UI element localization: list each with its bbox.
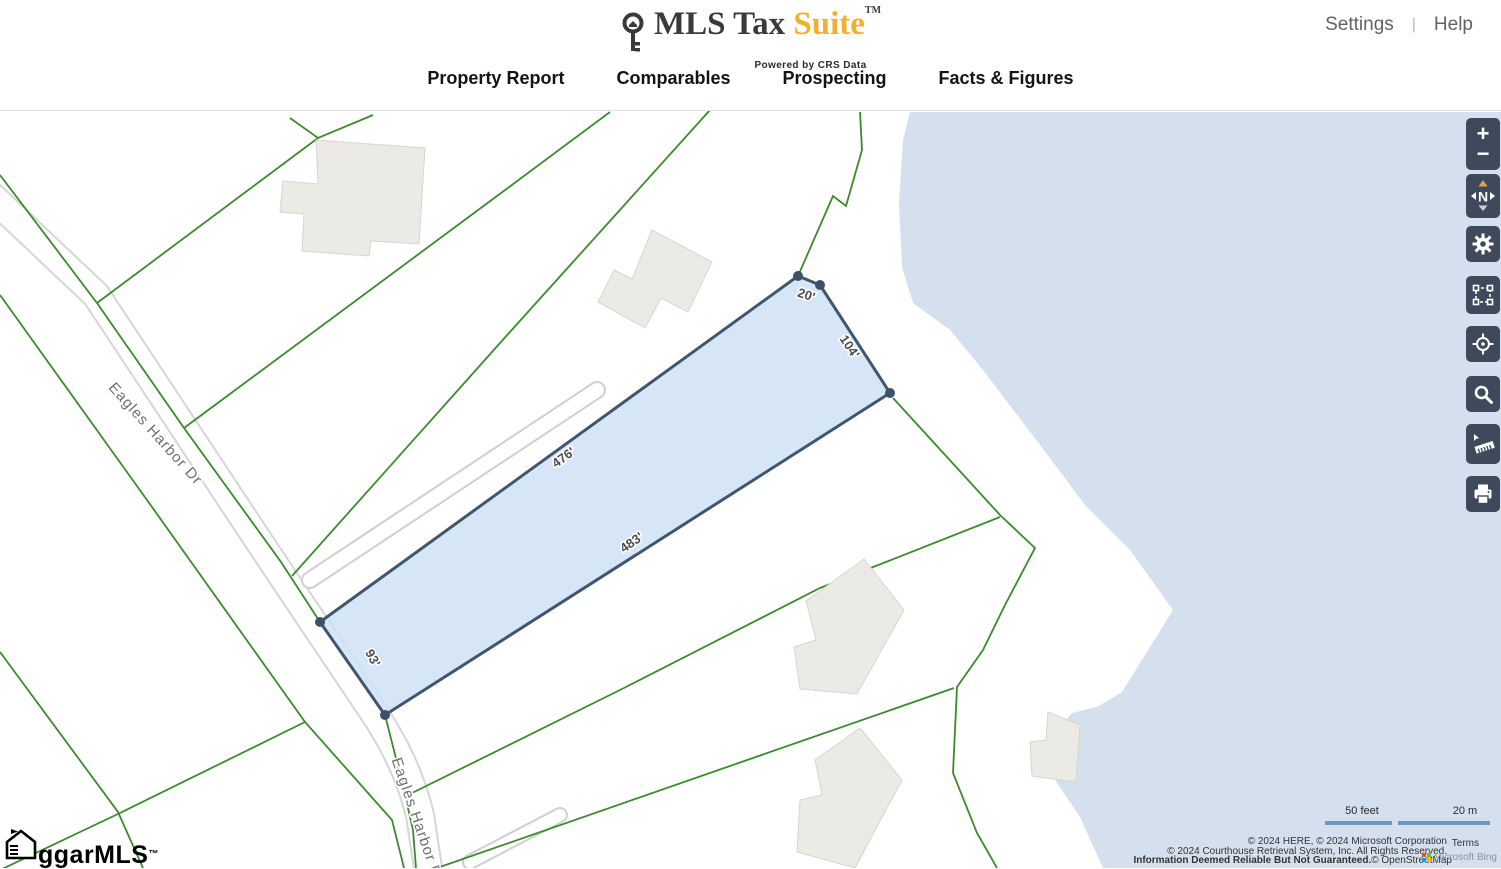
zoom-control[interactable]: + − bbox=[1466, 118, 1500, 170]
house-icon bbox=[2, 827, 38, 866]
map-settings-button[interactable] bbox=[1466, 226, 1500, 262]
compass-icon: N bbox=[1466, 174, 1500, 218]
scale-bar-feet bbox=[1325, 821, 1392, 825]
bing-watermark: Microsoft Bing bbox=[1422, 852, 1497, 863]
print-icon bbox=[1472, 483, 1494, 505]
search-button[interactable] bbox=[1466, 376, 1500, 412]
scale-meters-label: 20 m bbox=[1437, 805, 1493, 817]
links-divider: | bbox=[1412, 16, 1416, 34]
footer-logo-text: ggarMLS™ bbox=[38, 844, 159, 866]
map-canvas[interactable]: 20' 104' 476' 483' 93' Eagles Harbor Dr … bbox=[0, 0, 1501, 868]
terms-link[interactable]: Terms bbox=[1452, 838, 1479, 849]
area-select-icon bbox=[1472, 284, 1494, 306]
microsoft-logo-icon bbox=[1422, 853, 1431, 862]
area-select-button[interactable] bbox=[1466, 276, 1500, 314]
settings-link[interactable]: Settings bbox=[1325, 14, 1394, 36]
locate-button[interactable] bbox=[1466, 326, 1500, 362]
tab-property-report[interactable]: Property Report bbox=[427, 68, 564, 89]
scale-bar-meters bbox=[1398, 821, 1490, 825]
help-link[interactable]: Help bbox=[1434, 14, 1473, 36]
scale-feet-label: 50 feet bbox=[1332, 805, 1392, 817]
print-button[interactable] bbox=[1466, 476, 1500, 512]
zoom-out-button[interactable]: − bbox=[1477, 143, 1490, 165]
header: MLS Tax SuiteTM Powered by CRS Data Sett… bbox=[0, 0, 1501, 111]
measure-button[interactable] bbox=[1466, 424, 1500, 464]
key-icon bbox=[620, 12, 646, 59]
tab-comparables[interactable]: Comparables bbox=[616, 68, 730, 89]
tab-facts-figures[interactable]: Facts & Figures bbox=[939, 68, 1074, 89]
attribution-line3: Information Deemed Reliable But Not Guar… bbox=[1133, 855, 1452, 866]
search-icon bbox=[1472, 383, 1494, 405]
app-logo: MLS Tax SuiteTM Powered by CRS Data bbox=[0, 8, 1501, 71]
locate-icon bbox=[1472, 333, 1494, 355]
svg-text:N: N bbox=[1478, 189, 1488, 205]
mls-footer-logo: ggarMLS™ bbox=[2, 827, 159, 866]
main-nav: Property Report Comparables Prospecting … bbox=[0, 68, 1501, 89]
compass-button[interactable]: N bbox=[1466, 174, 1500, 218]
gear-icon bbox=[1472, 233, 1494, 255]
app-title: MLS Tax SuiteTM bbox=[654, 8, 881, 41]
trademark: TM bbox=[865, 5, 881, 16]
tab-prospecting[interactable]: Prospecting bbox=[783, 68, 887, 89]
measure-icon bbox=[1471, 432, 1495, 456]
